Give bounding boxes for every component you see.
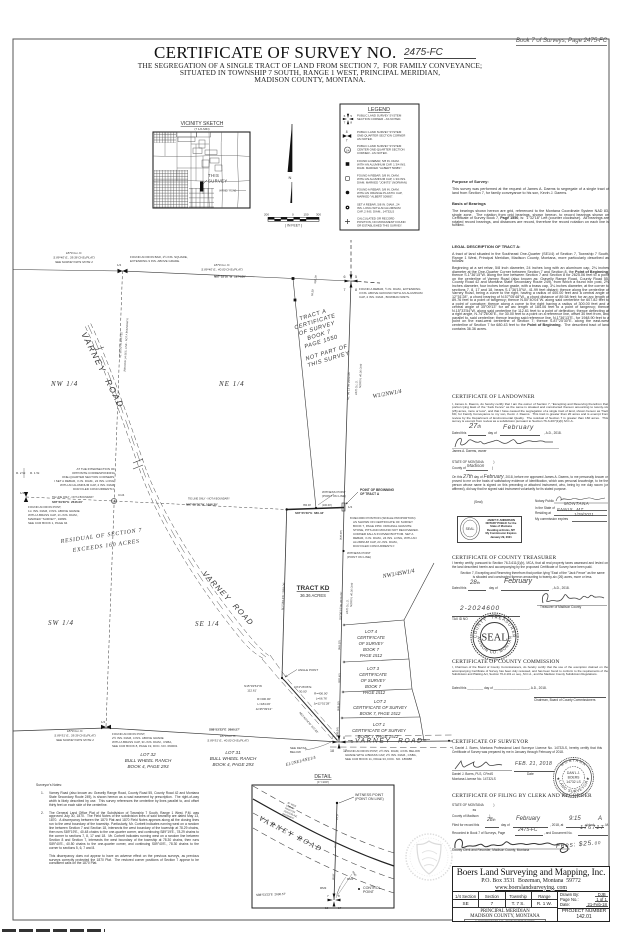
- svg-text:SEAL: SEAL: [481, 633, 507, 644]
- svg-text:BOERS: BOERS: [568, 776, 581, 780]
- svg-text:LEGEND: LEGEND: [368, 107, 390, 113]
- svg-text:7: 7: [344, 120, 346, 124]
- svg-text:14732 LS: 14732 LS: [566, 780, 581, 784]
- svg-text:DIAM. MARKED "ALBERT 5098S".: DIAM. MARKED "ALBERT 5098S".: [357, 166, 402, 170]
- svg-text:SECTION CORNER - AS NOTED.: SECTION CORNER - AS NOTED.: [357, 117, 401, 121]
- svg-text:★: ★: [586, 776, 590, 781]
- svg-text:8: 8: [346, 130, 348, 134]
- svg-text:DAN'L J.: DAN'L J.: [567, 771, 580, 775]
- svg-text:DIAM. MARKED "JOINTS" (NORMAN): DIAM. MARKED "JOINTS" (NORMAN): [357, 181, 407, 185]
- svg-text:OR ESTABLISHED THIS SURVEY.: OR ESTABLISHED THIS SURVEY.: [357, 224, 402, 228]
- svg-text:★: ★: [557, 776, 561, 781]
- svg-text:MARKED "ALBERT 5098S".: MARKED "ALBERT 5098S".: [357, 195, 394, 199]
- svg-text:5: 5: [350, 114, 352, 118]
- svg-text:6: 6: [344, 114, 346, 118]
- svg-text:CAP, 2 INS. DIAM., 14732LS: CAP, 2 INS. DIAM., 14732LS: [357, 210, 394, 214]
- svg-text:8: 8: [350, 120, 352, 124]
- svg-text:SEAL: SEAL: [466, 527, 475, 531]
- svg-text:AS NOTED.: AS NOTED.: [357, 137, 373, 141]
- svg-text:1/4: 1/4: [346, 148, 350, 152]
- svg-text:7: 7: [346, 139, 348, 143]
- svg-text:CORNER - AS NOTED.: CORNER - AS NOTED.: [357, 151, 388, 155]
